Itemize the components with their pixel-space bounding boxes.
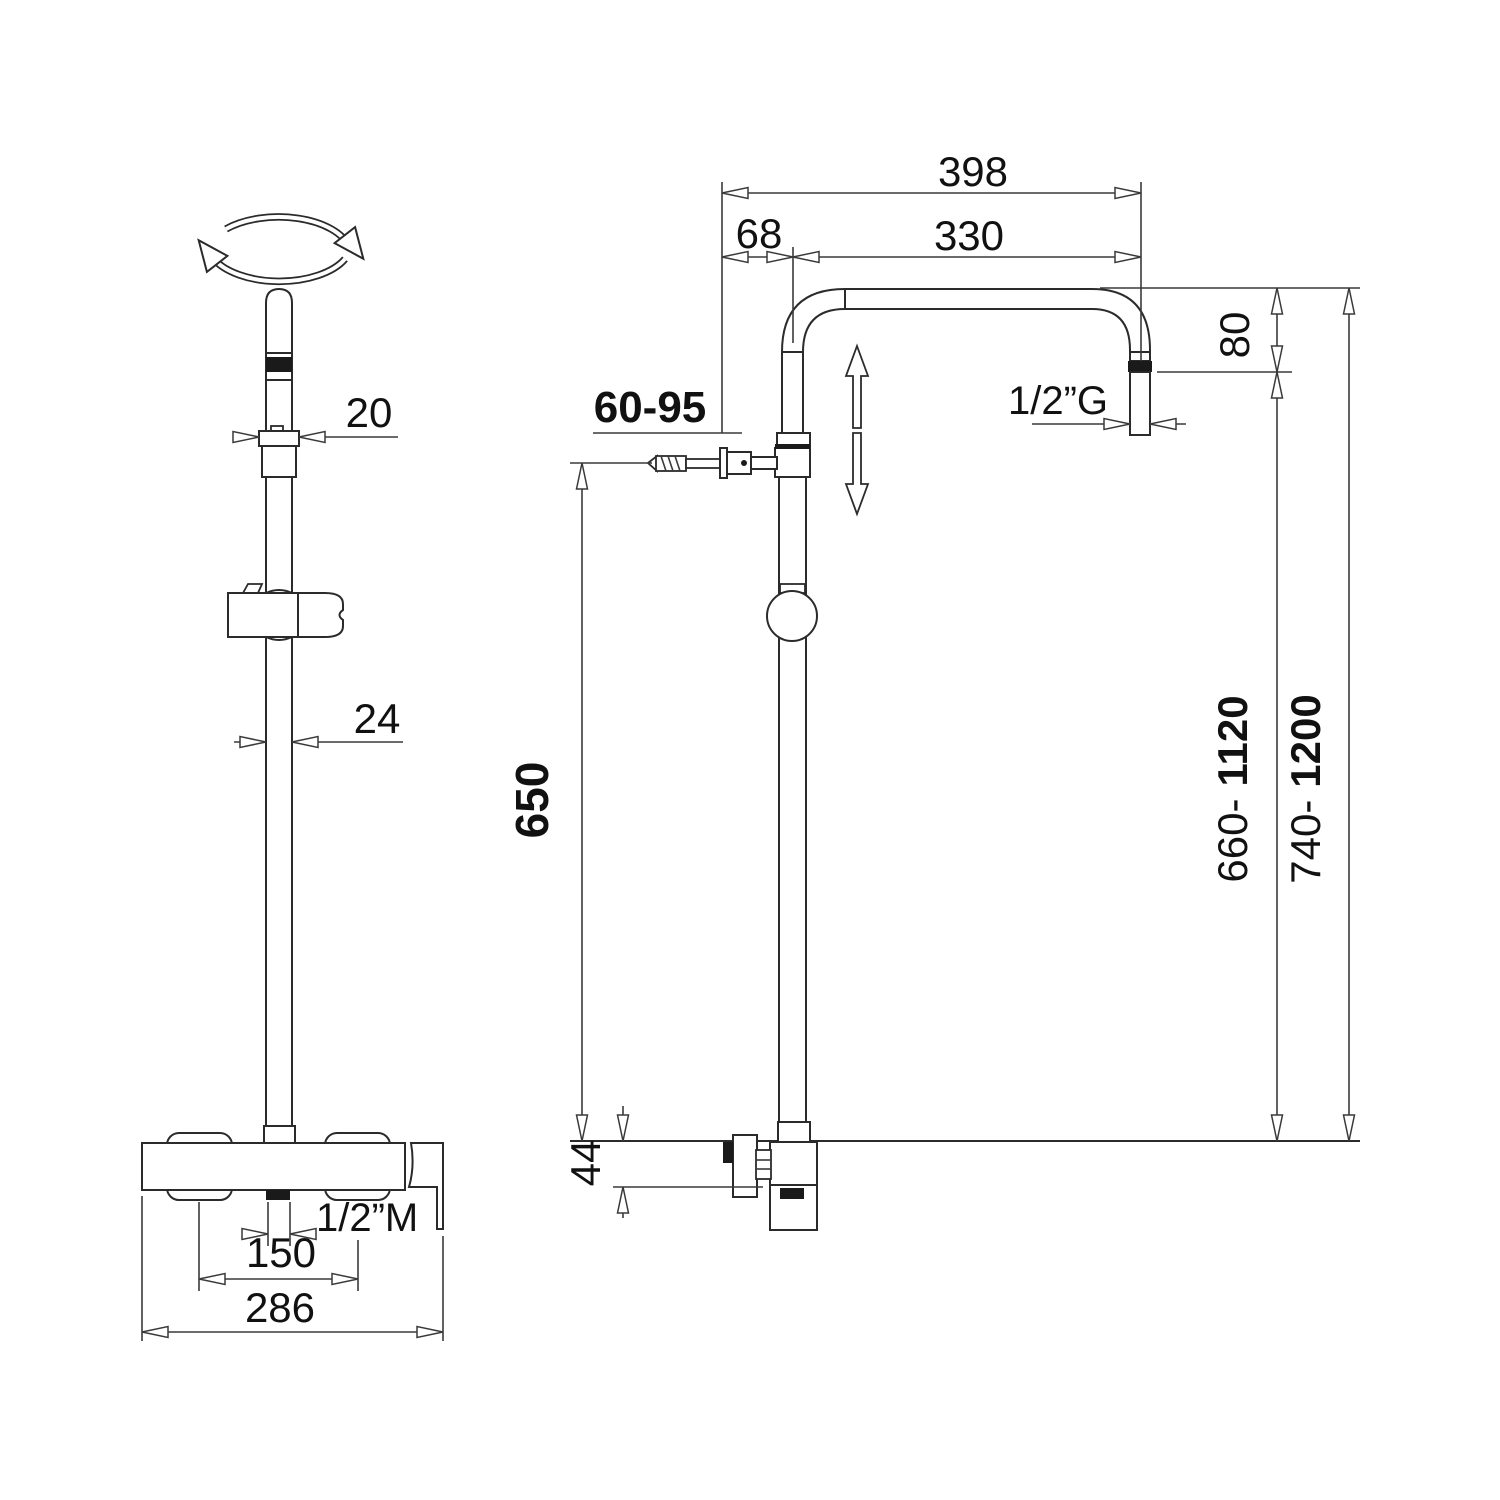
wall-screw-icon	[648, 456, 722, 471]
dim-label-650: 650	[506, 762, 558, 839]
arm-slider-coupling	[775, 433, 810, 477]
dim-1200-max: 1200	[1282, 694, 1329, 787]
hand-shower-pipe	[266, 289, 292, 1126]
outlet-nut	[1128, 361, 1152, 372]
dim-outlet-height-range: 660-1120	[1209, 372, 1277, 1141]
dim-label-60-95: 60-95	[594, 383, 707, 432]
dim-label-outlet-thread: 1/2”G	[1008, 379, 1108, 423]
dim-label-68: 68	[736, 210, 783, 257]
dim-label-80: 80	[1211, 312, 1258, 359]
dim-label-286: 286	[245, 1284, 315, 1331]
dim-740-prefix: 740-	[1282, 800, 1329, 884]
hose-nut	[756, 1150, 771, 1179]
dim-label-740-1200: 740-1200	[1282, 694, 1329, 884]
dim-label-398: 398	[938, 148, 1008, 195]
dim-total-height-range: 740-1200	[1282, 288, 1349, 1141]
side-view: 398 68 330 80 660-1120 740-1200	[506, 148, 1360, 1230]
slider-collar	[259, 426, 299, 477]
dim-label-330: 330	[934, 212, 1004, 259]
dim-1120-max: 1120	[1209, 695, 1256, 786]
riser-pipe	[779, 477, 806, 1122]
technical-drawing-page: 20 24 1/2”M 150 286	[0, 0, 1500, 1500]
dim-label-24: 24	[354, 695, 401, 742]
dim-top-diameter: 20	[234, 389, 398, 437]
height-adjust-arrows-icon	[846, 346, 868, 514]
dim-label-inlet-thread: 1/2”M	[316, 1196, 418, 1240]
shower-column-dimension-drawing: 20 24 1/2”M 150 286	[0, 0, 1500, 1500]
shower-holder-bracket	[228, 584, 343, 640]
wall-bracket	[648, 448, 777, 478]
dim-outlet-thread: 1/2”G	[1008, 379, 1186, 424]
front-view: 20 24 1/2”M 150 286	[142, 217, 443, 1341]
dim-label-660-1120: 660-1120	[1209, 695, 1256, 882]
dim-bracket-height: 650	[506, 463, 652, 1141]
dim-label-20: 20	[346, 389, 393, 436]
dim-label-44: 44	[562, 1140, 609, 1187]
mixer-valve-side	[723, 1122, 817, 1230]
diverter-knob	[767, 584, 817, 641]
rotation-arrows-icon	[188, 217, 373, 281]
dim-riser-diameter: 24	[234, 695, 403, 742]
dim-label-150: 150	[246, 1229, 316, 1276]
outlet-pipe	[1130, 372, 1150, 435]
dim-660-prefix: 660-	[1209, 799, 1256, 883]
dim-wall-offset-and-span: 68 330	[722, 210, 1141, 343]
wall-clearance-label: 60-95	[593, 383, 742, 433]
